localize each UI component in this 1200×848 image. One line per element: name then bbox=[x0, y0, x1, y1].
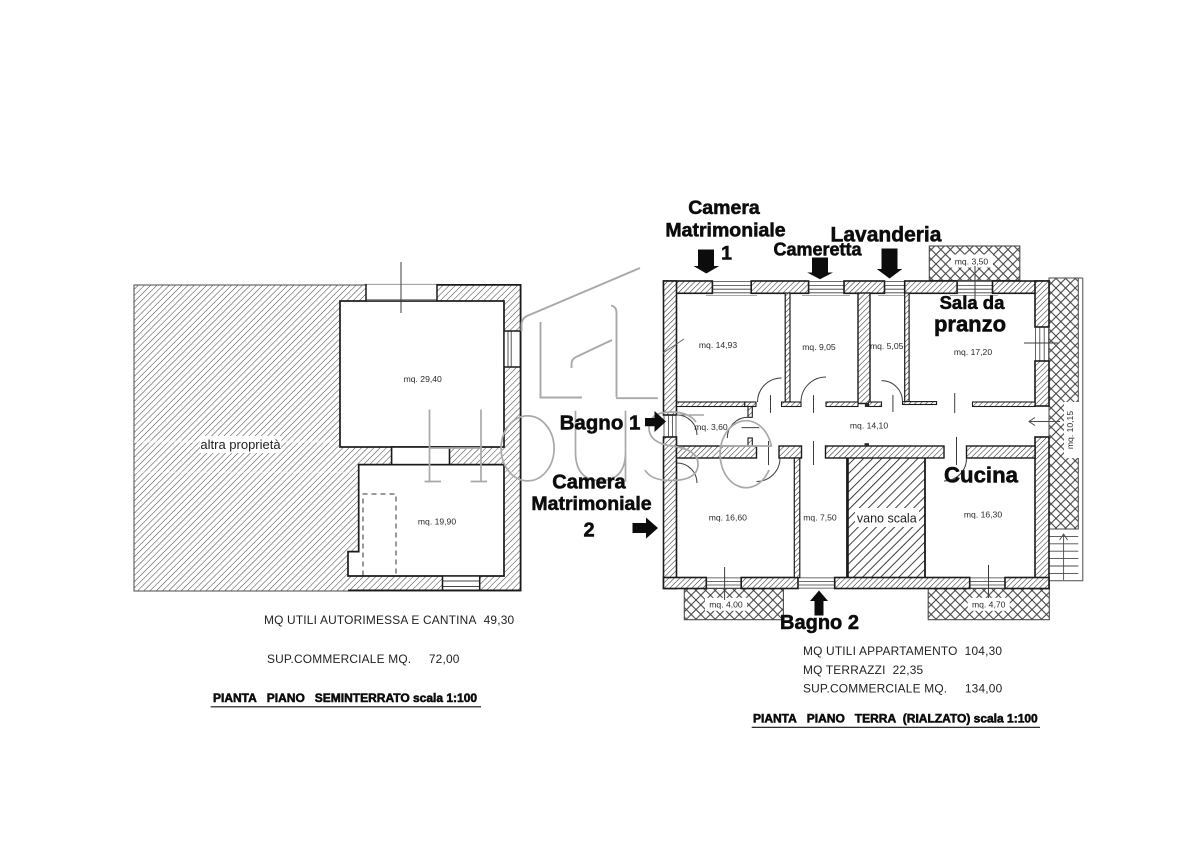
svg-text:mq. 3,50: mq. 3,50 bbox=[955, 256, 989, 266]
svg-text:Camera: Camera bbox=[688, 197, 760, 219]
svg-text:mq. 10,15: mq. 10,15 bbox=[1065, 411, 1075, 449]
svg-text:mq. 16,60: mq. 16,60 bbox=[709, 513, 747, 523]
svg-text:altra proprietà: altra proprietà bbox=[200, 437, 281, 452]
svg-text:mq. 14,10: mq. 14,10 bbox=[850, 421, 888, 431]
svg-text:MQ UTILI AUTORIMESSA E CANTINA: MQ UTILI AUTORIMESSA E CANTINA 49,30 bbox=[264, 613, 515, 627]
svg-text:SUP.COMMERCIALE MQ. 72,00: SUP.COMMERCIALE MQ. 72,00 bbox=[267, 652, 460, 666]
svg-text:mq. 4,70: mq. 4,70 bbox=[972, 600, 1006, 610]
svg-text:PIANTA PIANO SEMINTERRATO: PIANTA PIANO SEMINTERRATO scala 1:100 bbox=[213, 691, 477, 705]
svg-text:SUP.COMMERCIALE MQ. 134,00: SUP.COMMERCIALE MQ. 134,00 bbox=[803, 682, 1003, 696]
svg-text:Matrimoniale: Matrimoniale bbox=[665, 220, 785, 242]
svg-text:MQ TERRAZZI 22,35: MQ TERRAZZI 22,35 bbox=[803, 663, 924, 677]
svg-text:Lavanderia: Lavanderia bbox=[831, 224, 942, 247]
svg-text:Cucina: Cucina bbox=[944, 463, 1019, 488]
svg-text:mq. 3,60: mq. 3,60 bbox=[694, 422, 728, 432]
svg-text:mq. 17,20: mq. 17,20 bbox=[954, 347, 992, 357]
svg-text:pranzo: pranzo bbox=[934, 312, 1006, 337]
svg-text:2: 2 bbox=[583, 520, 594, 542]
svg-text:mq. 9,05: mq. 9,05 bbox=[802, 342, 836, 352]
svg-text:Camera: Camera bbox=[552, 472, 626, 494]
svg-text:Bagno 1: Bagno 1 bbox=[560, 412, 641, 435]
svg-text:MQ UTILI APPARTAMENTO 104,30: MQ UTILI APPARTAMENTO 104,30 bbox=[803, 644, 1002, 658]
svg-text:mq. 5,05: mq. 5,05 bbox=[870, 341, 904, 351]
svg-text:mq. 29,40: mq. 29,40 bbox=[404, 374, 442, 384]
svg-text:mq. 4,00: mq. 4,00 bbox=[709, 600, 743, 610]
svg-text:mq. 16,30: mq. 16,30 bbox=[964, 510, 1002, 520]
svg-text:mq. 19,90: mq. 19,90 bbox=[418, 517, 456, 527]
svg-text:Sala da: Sala da bbox=[940, 292, 1005, 313]
svg-text:Matrimoniale: Matrimoniale bbox=[531, 493, 651, 515]
svg-text:PIANTA PIANO TERRA (RIALZ: PIANTA PIANO TERRA (RIALZATO) scala 1:10… bbox=[753, 712, 1038, 726]
svg-text:mq. 7,50: mq. 7,50 bbox=[803, 513, 837, 523]
svg-text:mq. 14,93: mq. 14,93 bbox=[699, 340, 737, 350]
svg-text:1: 1 bbox=[721, 243, 732, 265]
svg-text:vano scala: vano scala bbox=[857, 512, 917, 526]
